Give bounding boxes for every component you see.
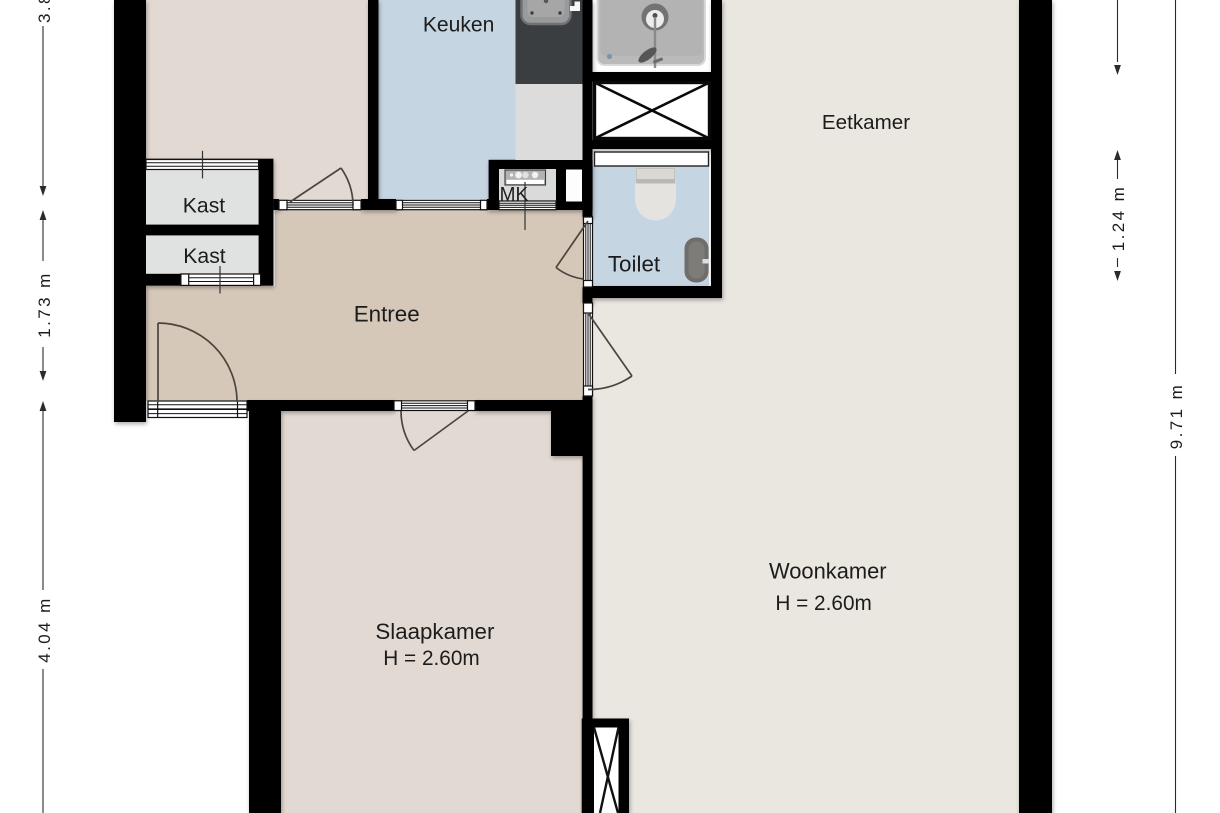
svg-text:Kast: Kast: [183, 195, 226, 218]
svg-text:Woonkamer: Woonkamer: [769, 559, 887, 584]
svg-text:Eetkamer: Eetkamer: [822, 111, 910, 134]
svg-text:Kast: Kast: [183, 245, 226, 268]
svg-text:H = 2.60m: H = 2.60m: [383, 647, 480, 670]
svg-text:Slaapkamer: Slaapkamer: [375, 619, 495, 644]
svg-text:4.04 m: 4.04 m: [35, 596, 54, 662]
svg-text:Toilet: Toilet: [608, 252, 661, 277]
svg-text:9.71 m: 9.71 m: [1167, 383, 1186, 449]
svg-text:1.24 m: 1.24 m: [1109, 185, 1128, 251]
svg-text:H = 2.60m: H = 2.60m: [775, 592, 872, 615]
svg-text:Entree: Entree: [354, 302, 420, 327]
svg-text:MK: MK: [500, 185, 529, 206]
svg-text:Keuken: Keuken: [423, 14, 495, 37]
svg-text:3.85 m: 3.85 m: [35, 0, 54, 23]
svg-text:1.73 m: 1.73 m: [35, 271, 54, 337]
